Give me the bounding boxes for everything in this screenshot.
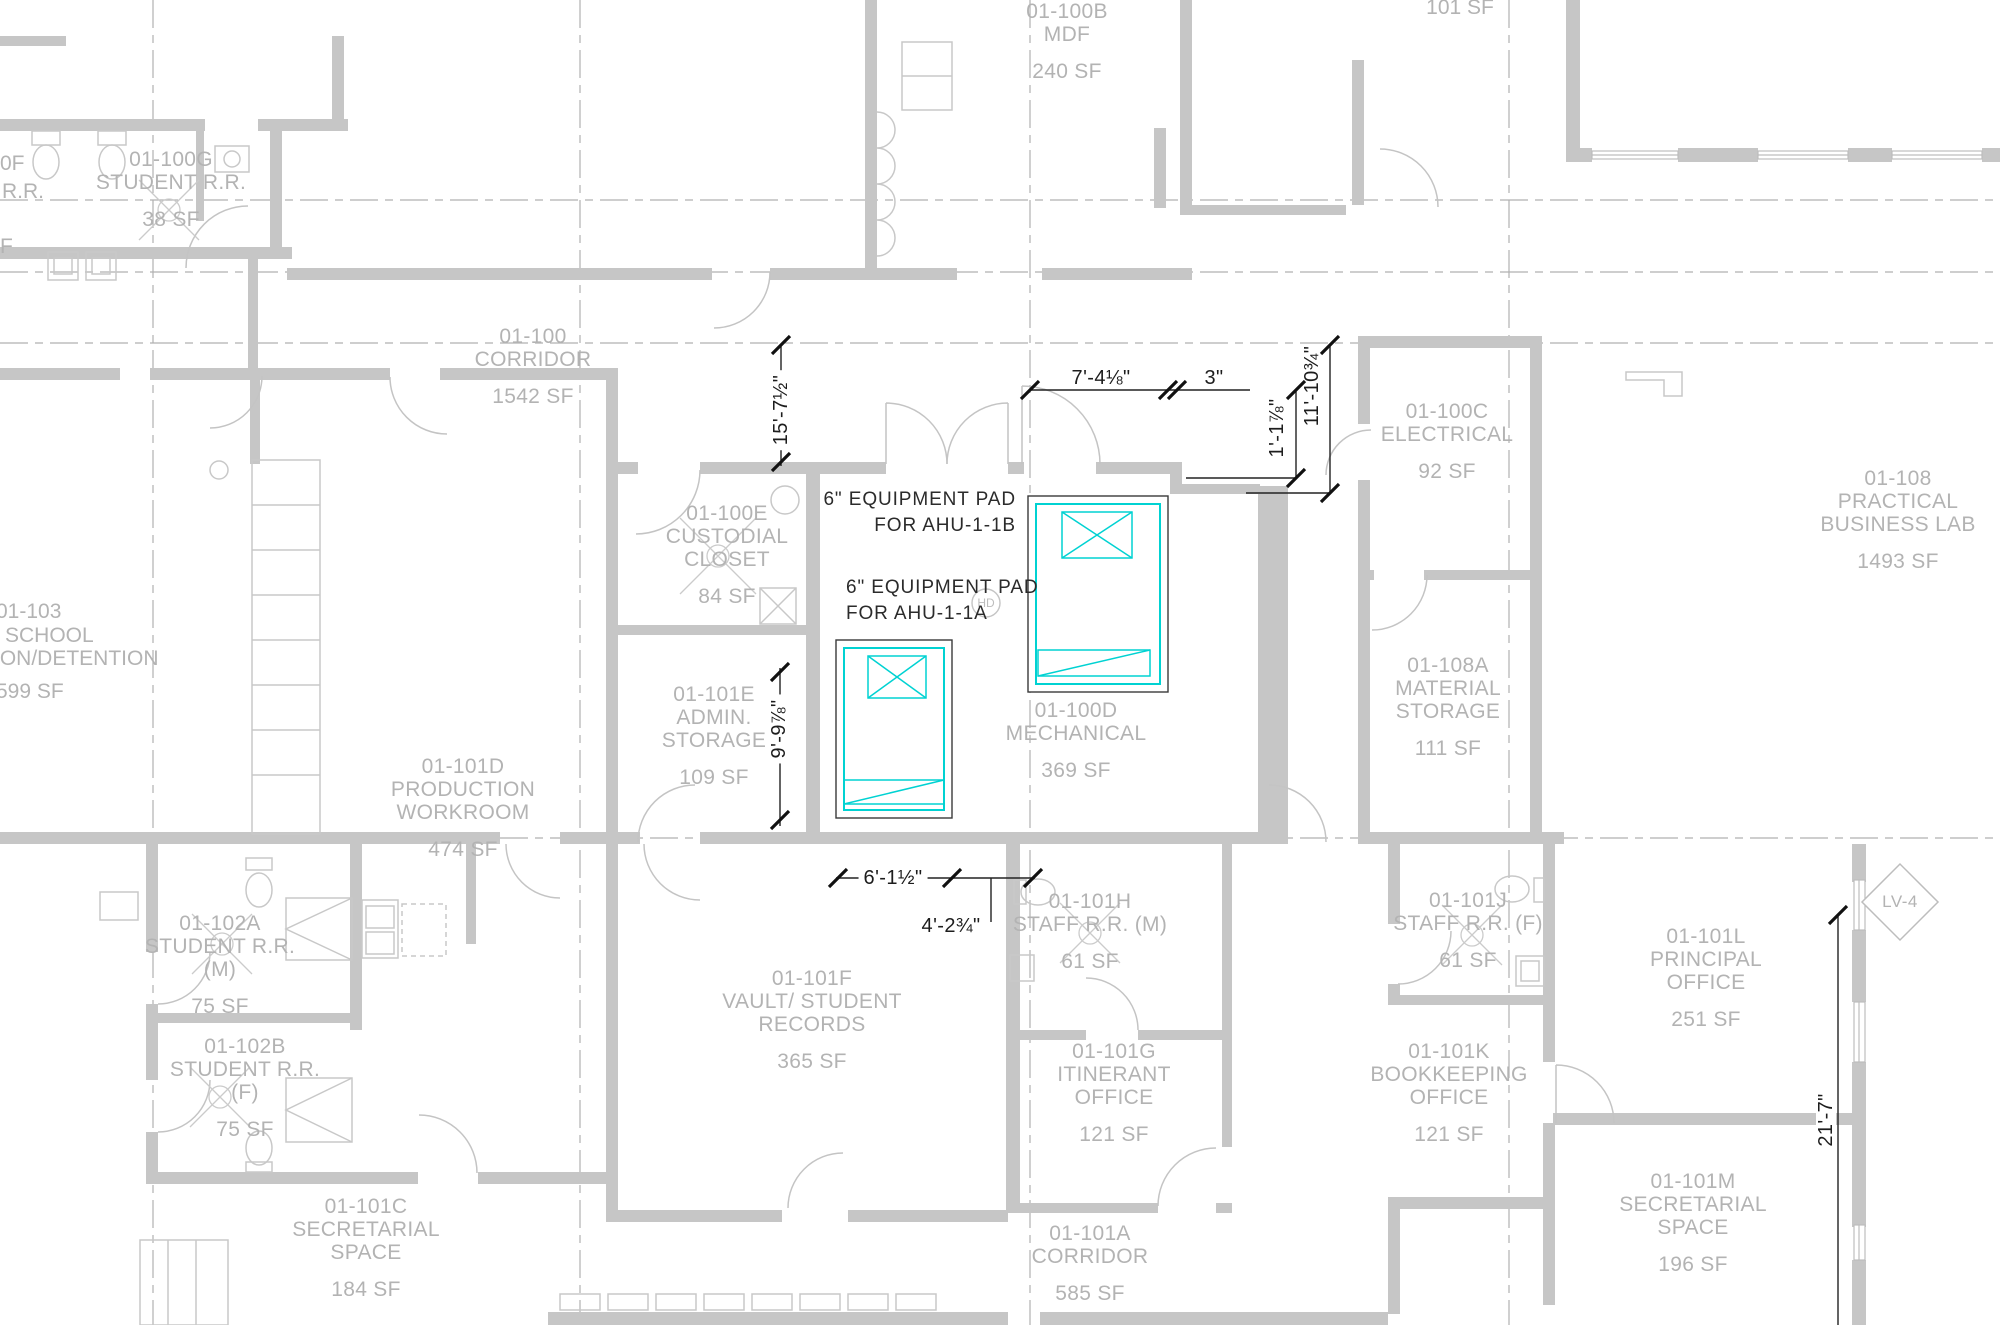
dimension-text-8: 21'-7" [1816, 1088, 1836, 1151]
room-label-01-101a: 01-101ACORRIDOR585 SF [1032, 1222, 1149, 1305]
room-label-01-100b: 01-100BMDF240 SF [1026, 0, 1108, 83]
equipment-pad-note-2: 6" EQUIPMENT PADFOR AHU-1-1A [846, 575, 1039, 627]
room-label-01-100c: 01-100CELECTRICAL92 SF [1381, 400, 1514, 483]
dimension-text-6: 6'-1½" [859, 868, 928, 888]
label-fragment-7: 599 SF [0, 680, 64, 703]
room-label-01-108a: 01-108AMATERIALSTORAGE111 SF [1395, 654, 1501, 760]
room-label-01-101d: 01-101DPRODUCTIONWORKROOM474 SF [391, 755, 535, 861]
label-fragment-3: F [0, 235, 13, 258]
label-fragment-1: 0F [0, 152, 25, 175]
dimension-text-4: 11'-10¾" [1302, 346, 1322, 426]
room-label-01-102b: 01-102BSTUDENT R.R.(F)75 SF [170, 1035, 320, 1141]
room-label-01-101k: 01-101KBOOKKEEPINGOFFICE121 SF [1370, 1040, 1527, 1146]
room-label-01-108: 01-108PRACTICALBUSINESS LAB1493 SF [1820, 467, 1975, 573]
room-label-01-101j: 01-101JSTAFF R.R. (F)61 SF [1393, 889, 1543, 972]
equipment-pad-note-1: 6" EQUIPMENT PADFOR AHU-1-1B [823, 487, 1016, 539]
room-label-01-100d: 01-100DMECHANICAL369 SF [1006, 699, 1147, 782]
room-label-01-101h: 01-101HSTAFF R.R. (M)61 SF [1013, 890, 1167, 973]
label-fragment-4: 01-103 [0, 600, 61, 623]
room-label-01-101g: 01-101GITINERANTOFFICE121 SF [1057, 1040, 1171, 1146]
dimension-text-3: 1'-1⅞" [1267, 399, 1287, 458]
room-label-01-100e: 01-100ECUSTODIALCLOSET84 SF [666, 502, 789, 608]
lv-tag-label: LV-4 [1882, 892, 1918, 912]
room-label-01-102a: 01-102ASTUDENT R.R.(M)75 SF [145, 912, 295, 1018]
dimension-text-2: 3" [1204, 368, 1223, 388]
room-label-01-101c: 01-101CSECRETARIALSPACE184 SF [292, 1195, 440, 1301]
label-fragment-6: ION/DETENTION [0, 647, 159, 670]
label-layer: LV-4 HD 01-100BMDF240 SF01-100GSTUDENT R… [0, 0, 2000, 1325]
room-label-01-101l: 01-101LPRINCIPALOFFICE251 SF [1650, 925, 1762, 1031]
room-label-01-101f: 01-101FVAULT/ STUDENTRECORDS365 SF [722, 967, 902, 1073]
room-label-01-100-corridor: 01-100CORRIDOR1542 SF [475, 325, 592, 408]
label-fragment-2: R.R. [2, 180, 44, 203]
label-fragment-5: SCHOOL [5, 624, 94, 647]
floor-plan-canvas: LV-4 HD 01-100BMDF240 SF01-100GSTUDENT R… [0, 0, 2000, 1325]
room-label-01-101e: 01-101EADMIN.STORAGE109 SF [662, 683, 766, 789]
dimension-text-0: 15'-7½" [771, 370, 791, 450]
room-label-01-100g: 01-100GSTUDENT R.R.38 SF [96, 148, 246, 231]
dimension-text-7: 4'-2¾" [922, 916, 981, 936]
label-fragment-0: 101 SF [1426, 0, 1494, 19]
dimension-text-5: 9'-9⅞" [769, 695, 789, 764]
room-label-01-101m: 01-101MSECRETARIALSPACE196 SF [1619, 1170, 1767, 1276]
dimension-text-1: 7'-4⅛" [1072, 368, 1131, 388]
